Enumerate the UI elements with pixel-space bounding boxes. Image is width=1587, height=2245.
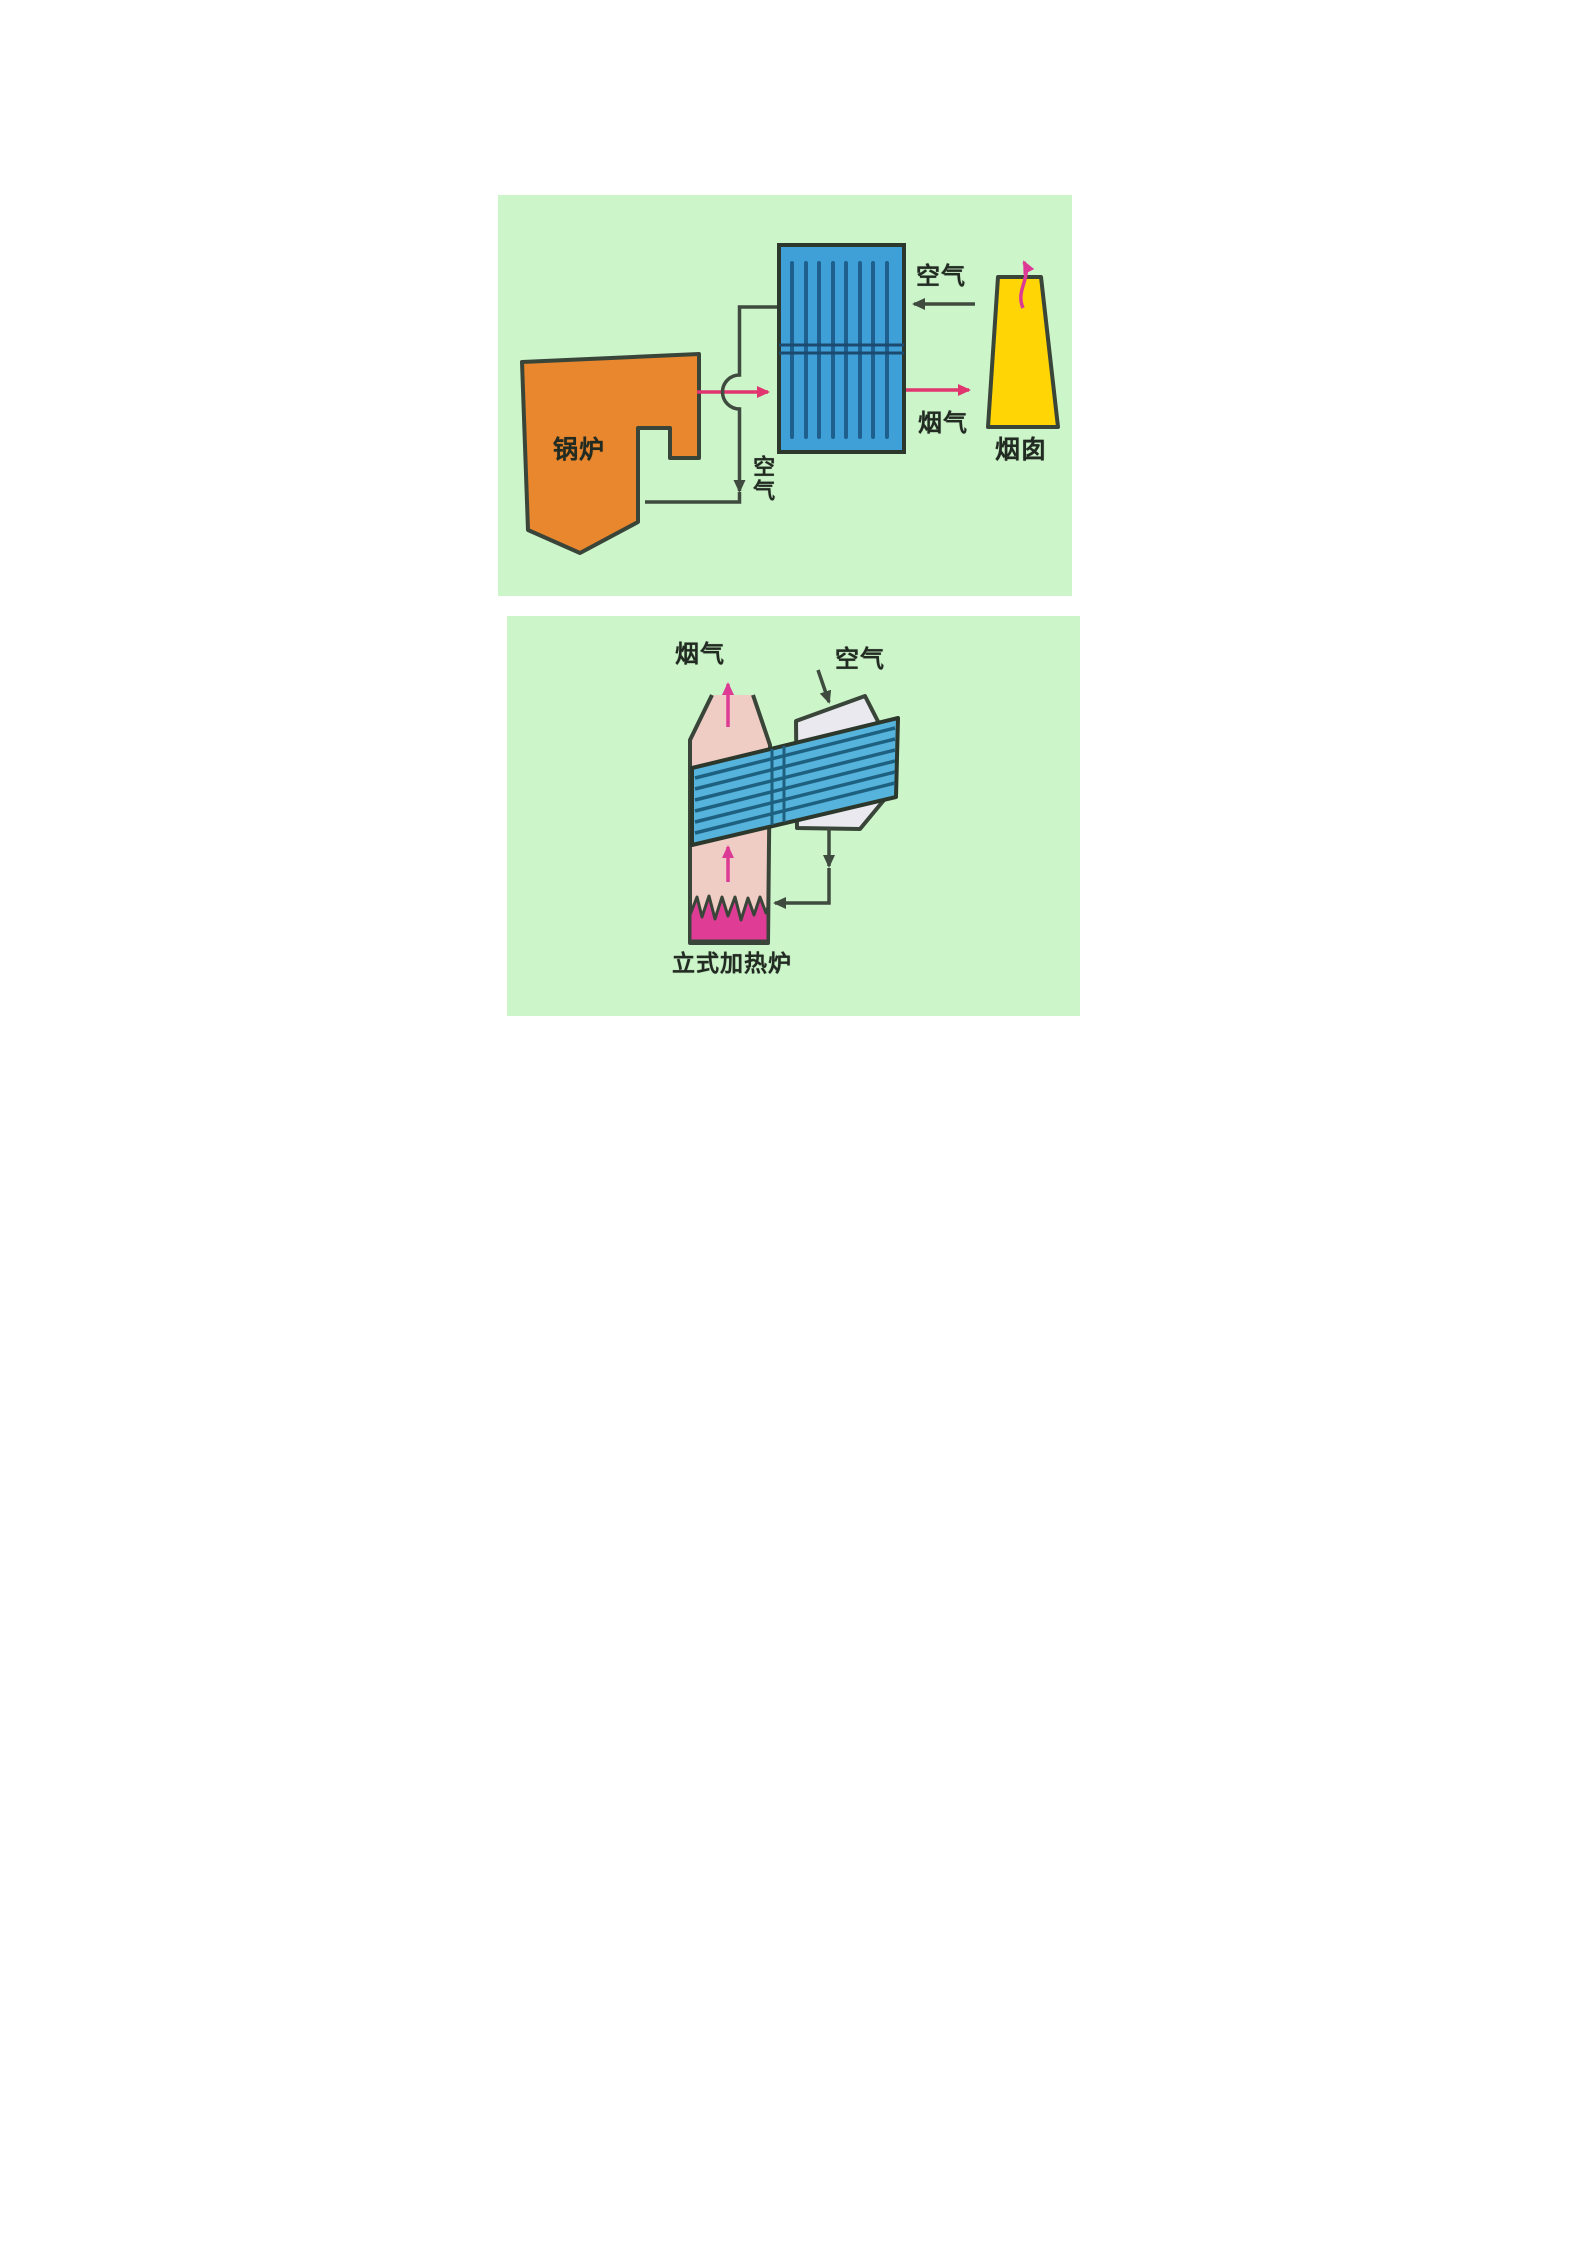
air-pipe-into-furnace	[775, 868, 829, 903]
furnace-label: 立式加热炉	[672, 952, 792, 976]
vertical-furnace-diagram	[507, 616, 1080, 1016]
flue-gas-label: 烟气	[918, 411, 968, 436]
air-label: 空气	[835, 647, 885, 672]
boiler-preheater-diagram	[498, 195, 1072, 596]
boiler-shape	[522, 354, 699, 553]
flue-gas-label: 烟气	[675, 642, 725, 667]
air-preheater	[779, 245, 904, 452]
boiler-preheater-diagram-panel: 锅炉 空气 烟气 烟囱 空气	[498, 195, 1072, 596]
air-inlet-arrow	[818, 670, 829, 702]
boiler-label: 锅炉	[553, 437, 605, 463]
air-pipe-line	[723, 307, 780, 445]
document-page: { "panel1": { "labels": { "boiler": "锅炉"…	[0, 0, 1587, 2245]
vertical-furnace-diagram-panel: 烟气 空气 立式加热炉	[507, 616, 1080, 1016]
air-outlet-label: 空气	[750, 455, 773, 503]
air-pipe-into-boiler	[645, 492, 740, 502]
chimney-label: 烟囱	[995, 437, 1047, 463]
air-inlet-label: 空气	[916, 264, 966, 289]
chimney-shape	[988, 277, 1058, 427]
